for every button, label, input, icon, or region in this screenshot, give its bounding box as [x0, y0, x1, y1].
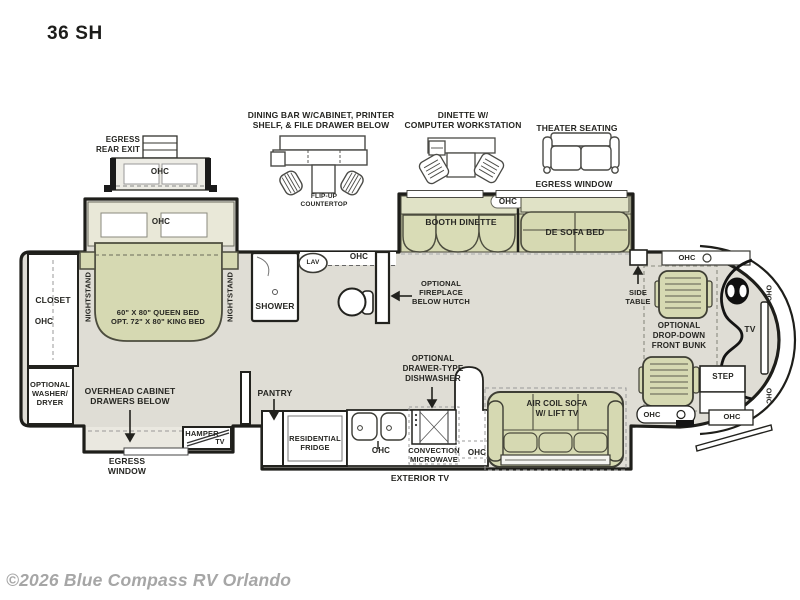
dinette-chair-left [418, 153, 451, 186]
rear-ohc-label: OHC [151, 167, 169, 177]
nightstand-left-label: NIGHTSTAND [83, 272, 92, 322]
front-bunk-label: OPTIONAL DROP-DOWN FRONT BUNK [652, 321, 706, 350]
steering-wheel [725, 278, 749, 305]
hutch-wall [376, 252, 389, 323]
wall-stub [241, 372, 250, 424]
driver-seat [655, 271, 712, 318]
washer-dryer-label: OPTIONAL WASHER/ DRYER [30, 380, 70, 407]
flip-up-countertop [312, 165, 335, 193]
dining-bar-label: DINING BAR W/CABINET, PRINTER SHELF, & F… [248, 110, 395, 131]
cap-ohc-top-label: OHC [763, 285, 772, 301]
de-sofa-bed-label: DE SOFA BED [546, 227, 605, 237]
fridge-label: RESIDENTIAL FRIDGE [289, 434, 341, 452]
closet [28, 254, 78, 366]
hamper-label: HAMPER [185, 429, 218, 438]
side-table [630, 250, 647, 265]
nightstand-right [222, 252, 238, 269]
floorplan-page: 36 SH EGRESS REAR EXIT OHC DINING BAR W/… [0, 0, 800, 600]
step-ohc-label: OHC [723, 412, 740, 421]
rear-egress-window [124, 448, 188, 455]
dishwasher-label: OPTIONAL DRAWER-TYPE DISHWASHER [403, 354, 464, 383]
shower-label: SHOWER [255, 301, 294, 311]
front-ohc-strip [662, 251, 750, 265]
front-tv-label: TV [744, 324, 755, 334]
de-sofa-bed [521, 196, 629, 252]
dinette-drawing [418, 138, 506, 185]
closet-ohc-label: OHC [35, 317, 53, 327]
toilet [339, 289, 374, 316]
nightstand-left [80, 252, 95, 269]
floorplan-drawing [0, 0, 800, 600]
hamper-tv-label: TV [215, 439, 224, 448]
dinette-label: DINETTE W/ COMPUTER WORKSTATION [405, 110, 522, 131]
dinette-pedestal [447, 153, 475, 177]
nightstand-right-label: NIGHTSTAND [225, 272, 234, 322]
side-table-label: SIDE TABLE [625, 288, 650, 306]
queen-bed [95, 243, 222, 341]
booth-dinette-label: BOOTH DINETTE [425, 217, 496, 227]
copyright-footer: ©2026 Blue Compass RV Orlando [6, 572, 291, 590]
cap-ohc-bottom-label: OHC [763, 388, 772, 404]
dinette-chair-right [473, 152, 506, 185]
rear-egress-window-label: EGRESS WINDOW [108, 456, 146, 477]
step-label: STEP [712, 372, 734, 382]
fireplace-label: OPTIONAL FIREPLACE BELOW HUTCH [412, 279, 470, 306]
microwave-label: CONVECTION MICROWAVE [408, 446, 460, 464]
exterior-tv-label: EXTERIOR TV [391, 473, 449, 483]
pantry-cabinet [262, 411, 283, 466]
kitchen-ohc-right-label: OHC [468, 448, 486, 458]
bed-ohc-label: OHC [152, 217, 170, 227]
egress-rear-exit-label: EGRESS REAR EXIT [76, 135, 140, 155]
slide-window-left [407, 191, 483, 198]
closet-label: CLOSET [35, 295, 70, 305]
dining-bar-drawing [271, 136, 367, 197]
entry-ohc-label: OHC [643, 410, 660, 419]
egress-window-label: EGRESS WINDOW [535, 179, 612, 189]
front-tv [761, 302, 768, 374]
booth-ohc-label: OHC [499, 197, 517, 207]
theater-seating-label: THEATER SEATING [536, 123, 617, 133]
kitchen-ohc-left-label: OHC [372, 446, 390, 456]
page-title: 36 SH [47, 24, 103, 43]
passenger-seat [639, 357, 699, 406]
queen-bed-label: 60" X 80" QUEEN BED OPT. 72" X 80" KING … [111, 308, 205, 326]
bath-ohc-label: OHC [350, 252, 368, 262]
lav-label: LAV [307, 259, 320, 267]
rear-exit-window [143, 136, 177, 158]
front-ohc-label: OHC [678, 253, 695, 262]
theater-seating-drawing [543, 133, 619, 173]
flip-up-label: FLIP-UP COUNTERTOP [301, 193, 348, 209]
pantry-label: PANTRY [258, 388, 293, 398]
air-coil-sofa-label: AIR COIL SOFA W/ LIFT TV [527, 399, 588, 419]
overhead-cabinet-label: OVERHEAD CABINET DRAWERS BELOW [85, 386, 176, 407]
